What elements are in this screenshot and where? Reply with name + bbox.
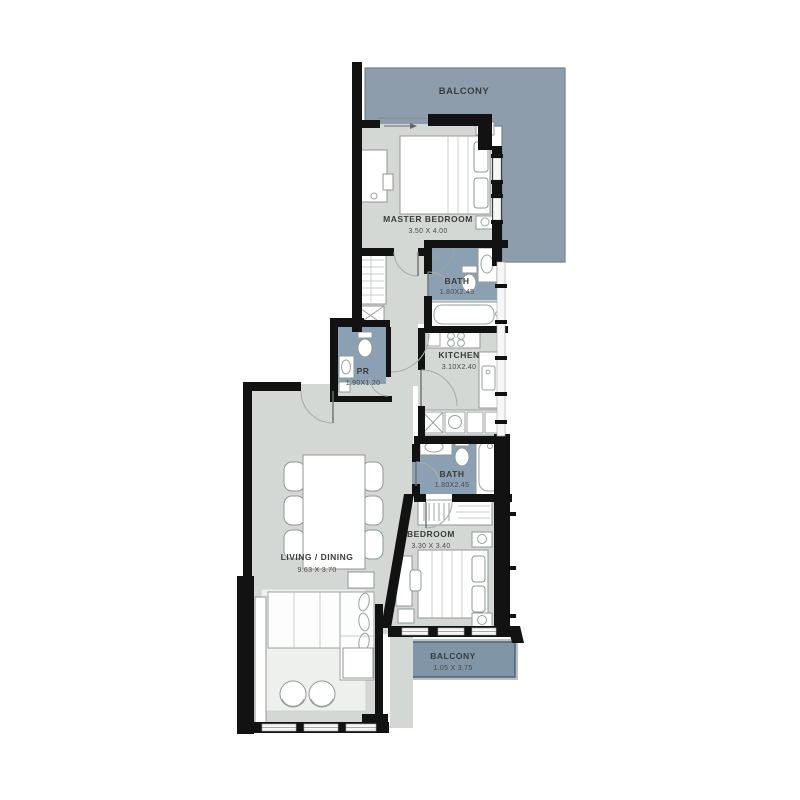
living-dining-dims: 9.63 X 3.70 [297, 567, 336, 574]
bedroom-bed [418, 550, 488, 618]
floor-plan-drawing: BALCONY MASTER BEDROOM 3.50 X 4.00 BATH … [0, 0, 800, 800]
master-bed [400, 136, 490, 214]
desk-chair [410, 570, 421, 591]
side-table [348, 572, 374, 588]
toilet-tank-icon [462, 266, 477, 273]
kitchen-label: KITCHEN [438, 350, 479, 360]
bedroom-label: BEDROOM [407, 529, 455, 539]
bedroom-wardrobe [418, 500, 492, 525]
bedroom-nightstand-top [472, 532, 492, 547]
powder-room-label: PR [357, 366, 370, 376]
master-bedroom-label: MASTER BEDROOM [383, 214, 473, 224]
toilet-tank-icon [358, 332, 372, 338]
balcony-bottom-dims: 1.05 X 3.75 [433, 665, 472, 672]
window [493, 158, 501, 180]
master-bath-dims: 1.80X2.45 [440, 289, 475, 296]
window [493, 198, 501, 220]
second-bath-dims: 1.80X2.45 [435, 482, 470, 489]
master-bedroom-dims: 3.50 X 4.00 [408, 228, 447, 235]
lounge-pouf [309, 681, 335, 707]
coffee-table [343, 648, 373, 678]
dining-chair [284, 462, 305, 491]
toilet-icon [358, 339, 372, 357]
window-band [497, 262, 505, 436]
tv-console [255, 597, 266, 723]
balcony-bottom-label: BALCONY [430, 651, 476, 661]
floor-plan-page: BALCONY MASTER BEDROOM 3.50 X 4.00 BATH … [0, 0, 800, 800]
dining-chair [284, 496, 305, 525]
bedroom-dims: 3.30 X 3.40 [411, 543, 450, 550]
living-right-void [382, 634, 390, 726]
balcony-top-label: BALCONY [439, 86, 490, 97]
bedroom-nightstand-bottom [472, 613, 492, 628]
master-bath-label: BATH [445, 276, 470, 286]
toilet-icon [455, 448, 469, 466]
powder-room-dims: 1.90X1.20 [346, 380, 381, 387]
living-dining-label: LIVING / DINING [281, 552, 354, 562]
kitchen-dims: 3.10X2.40 [442, 364, 477, 371]
bathtub-icon [430, 302, 504, 327]
lounge-pouf [280, 681, 306, 707]
second-bath-label: BATH [440, 469, 465, 479]
